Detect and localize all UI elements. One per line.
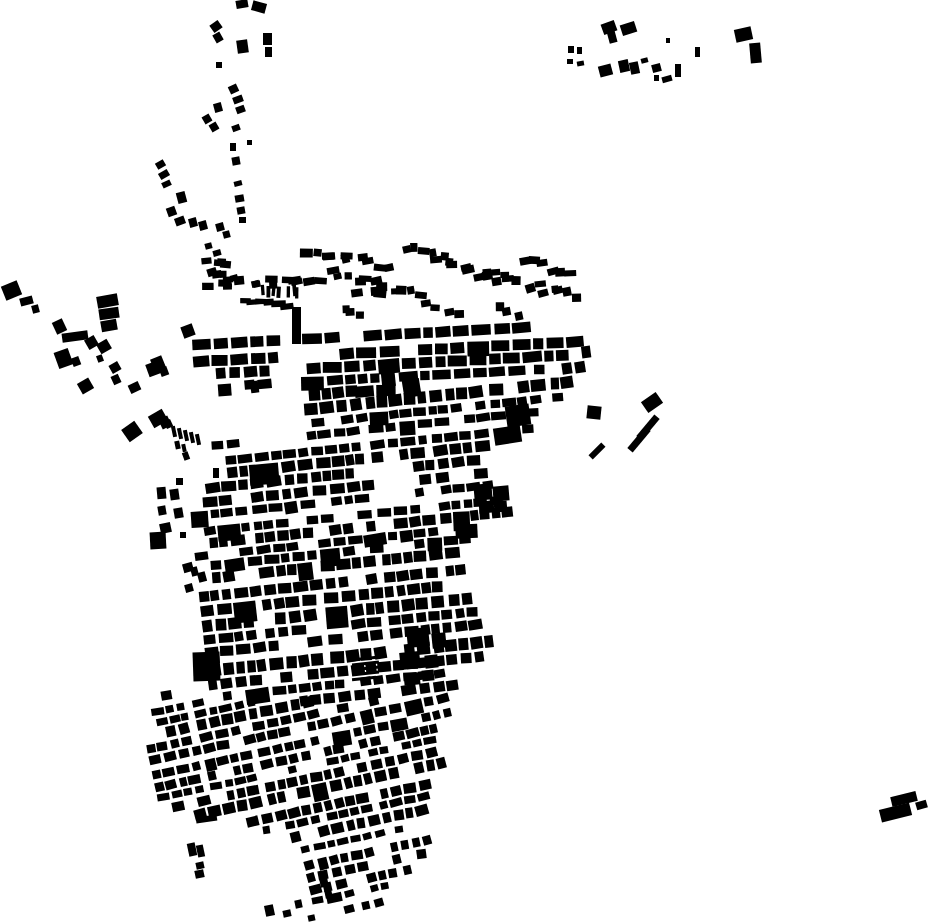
- building: [416, 642, 430, 655]
- building: [323, 362, 342, 373]
- building: [341, 590, 355, 602]
- building: [176, 703, 185, 711]
- building: [240, 750, 253, 761]
- building: [268, 352, 279, 364]
- building: [464, 414, 475, 423]
- building: [470, 354, 487, 365]
- building: [390, 717, 409, 732]
- building: [620, 21, 638, 36]
- building: [393, 660, 404, 671]
- building: [429, 723, 438, 733]
- building: [522, 424, 534, 433]
- building: [425, 747, 438, 759]
- building: [376, 385, 395, 396]
- building: [192, 698, 205, 707]
- building: [96, 293, 119, 308]
- building: [363, 724, 376, 735]
- building: [450, 403, 462, 413]
- building: [161, 179, 172, 188]
- building: [195, 785, 204, 794]
- building: [560, 376, 574, 390]
- building: [328, 634, 343, 645]
- building: [413, 762, 424, 775]
- building: [363, 360, 376, 372]
- building: [218, 495, 232, 506]
- building: [409, 568, 423, 580]
- building: [263, 33, 272, 45]
- building: [400, 840, 409, 850]
- building: [321, 388, 331, 400]
- building: [71, 356, 82, 367]
- building: [273, 597, 285, 609]
- building: [442, 622, 451, 633]
- building: [317, 857, 329, 871]
- building: [329, 854, 340, 865]
- building: [210, 560, 221, 570]
- building: [365, 662, 377, 674]
- building: [418, 435, 427, 444]
- building: [285, 474, 295, 485]
- building: [323, 746, 332, 757]
- building: [267, 793, 277, 806]
- building: [411, 750, 424, 761]
- building: [156, 741, 168, 751]
- building: [235, 0, 248, 9]
- building: [276, 519, 289, 528]
- building: [192, 339, 211, 350]
- building: [211, 355, 227, 366]
- building: [455, 608, 465, 619]
- building: [443, 708, 452, 718]
- building: [306, 363, 321, 375]
- building: [222, 570, 235, 583]
- building: [342, 546, 355, 557]
- building: [651, 63, 662, 73]
- building: [209, 122, 220, 133]
- building: [250, 491, 264, 503]
- building: [300, 845, 310, 853]
- building: [332, 469, 345, 480]
- building: [246, 815, 260, 827]
- building: [404, 698, 424, 716]
- building: [354, 689, 365, 700]
- building: [459, 534, 471, 544]
- building: [216, 62, 222, 68]
- building: [326, 757, 339, 766]
- building: [399, 530, 413, 543]
- building: [325, 681, 335, 690]
- building: [218, 703, 232, 713]
- building: [171, 800, 185, 812]
- building: [493, 425, 522, 446]
- building: [517, 380, 530, 393]
- building: [351, 618, 366, 630]
- building: [416, 612, 427, 622]
- building: [271, 450, 282, 460]
- building: [438, 501, 450, 511]
- building: [239, 217, 246, 223]
- building: [332, 744, 344, 755]
- building: [464, 499, 473, 508]
- building: [157, 792, 170, 801]
- building: [564, 270, 576, 276]
- building: [100, 319, 118, 333]
- building: [183, 788, 193, 796]
- building: [446, 654, 458, 665]
- building: [418, 670, 433, 680]
- building: [377, 661, 391, 673]
- building: [275, 809, 288, 821]
- building: [380, 788, 389, 799]
- building: [188, 217, 198, 228]
- building: [98, 307, 119, 321]
- building: [233, 180, 242, 187]
- building: [366, 603, 375, 615]
- building: [77, 378, 94, 395]
- building: [297, 459, 313, 471]
- building: [433, 668, 445, 678]
- building: [288, 753, 299, 764]
- building: [433, 640, 445, 653]
- building: [180, 532, 186, 538]
- building: [454, 310, 464, 318]
- building: [218, 384, 232, 397]
- building: [385, 423, 396, 432]
- building: [233, 765, 242, 775]
- building: [300, 499, 315, 509]
- building: [346, 819, 356, 831]
- building: [379, 800, 389, 810]
- building: [355, 792, 369, 804]
- building: [336, 558, 351, 570]
- building: [501, 506, 513, 517]
- building: [247, 698, 256, 707]
- building: [171, 789, 182, 798]
- building: [327, 375, 344, 386]
- building: [237, 454, 252, 464]
- building: [223, 283, 232, 289]
- building: [298, 448, 309, 458]
- building: [202, 742, 216, 754]
- building: [304, 403, 318, 416]
- building: [265, 781, 276, 792]
- building: [456, 387, 467, 399]
- building: [239, 546, 254, 556]
- building: [272, 744, 283, 755]
- building: [389, 797, 403, 808]
- building: [213, 468, 219, 478]
- building: [345, 468, 354, 479]
- building: [255, 532, 264, 543]
- building: [378, 358, 400, 374]
- building: [470, 636, 484, 650]
- building: [412, 460, 424, 472]
- building: [359, 275, 372, 282]
- building: [322, 882, 332, 893]
- building: [253, 641, 267, 653]
- building: [431, 596, 444, 609]
- building: [243, 615, 254, 628]
- building: [382, 554, 391, 565]
- building: [511, 276, 520, 285]
- building: [301, 751, 311, 761]
- building: [313, 802, 323, 813]
- building: [317, 870, 328, 881]
- building: [388, 615, 401, 625]
- building: [452, 484, 464, 493]
- building: [337, 665, 349, 676]
- building: [363, 772, 373, 785]
- building: [154, 781, 165, 792]
- building: [581, 346, 591, 359]
- building: [415, 291, 427, 299]
- building: [404, 393, 416, 405]
- building: [444, 536, 459, 546]
- building: [173, 507, 184, 518]
- building: [351, 850, 364, 861]
- building: [198, 220, 208, 231]
- building: [201, 257, 212, 264]
- building: [391, 553, 402, 565]
- building: [393, 517, 408, 529]
- building: [514, 311, 523, 321]
- building: [323, 800, 333, 812]
- building: [334, 797, 345, 809]
- building: [437, 405, 448, 414]
- building: [400, 436, 416, 446]
- building: [399, 408, 412, 418]
- building: [530, 379, 546, 392]
- building: [413, 407, 426, 416]
- building: [410, 447, 425, 459]
- building: [640, 57, 648, 64]
- building: [275, 612, 286, 624]
- building: [421, 712, 431, 722]
- building: [156, 717, 169, 726]
- building: [434, 417, 449, 426]
- building: [306, 516, 318, 525]
- building: [325, 606, 349, 629]
- building: [307, 636, 323, 648]
- building: [462, 442, 472, 454]
- building: [449, 443, 462, 455]
- building: [484, 635, 494, 648]
- building: [238, 479, 248, 490]
- building: [353, 775, 363, 787]
- building: [227, 439, 240, 448]
- building: [297, 473, 308, 483]
- building: [419, 656, 435, 668]
- building: [606, 29, 617, 44]
- building: [452, 325, 469, 337]
- building: [212, 32, 223, 44]
- building: [915, 800, 928, 811]
- building: [280, 671, 293, 682]
- building: [301, 804, 312, 815]
- building: [749, 43, 762, 64]
- building: [193, 355, 210, 367]
- building: [373, 898, 384, 908]
- building: [210, 781, 223, 790]
- building: [310, 736, 320, 746]
- building: [264, 555, 279, 565]
- building: [1, 280, 22, 300]
- building: [212, 249, 221, 257]
- building: [414, 539, 425, 549]
- building: [336, 400, 347, 413]
- building: [331, 455, 345, 467]
- building: [224, 557, 245, 573]
- building: [489, 366, 506, 377]
- building: [339, 443, 350, 453]
- building: [444, 432, 458, 442]
- building: [589, 443, 606, 460]
- building: [277, 791, 287, 803]
- building: [300, 249, 313, 258]
- building: [338, 809, 349, 819]
- building: [52, 318, 67, 334]
- building: [248, 708, 257, 720]
- building: [187, 842, 198, 856]
- building: [207, 771, 217, 782]
- building: [280, 715, 292, 725]
- building: [362, 480, 375, 491]
- building: [344, 889, 355, 898]
- building: [358, 589, 369, 601]
- building: [96, 354, 104, 363]
- building: [292, 307, 301, 344]
- building: [385, 756, 396, 767]
- building: [410, 243, 418, 252]
- building: [285, 820, 295, 829]
- building: [230, 534, 246, 546]
- building: [365, 397, 375, 410]
- building: [402, 358, 416, 369]
- building: [445, 547, 461, 559]
- building: [203, 634, 216, 645]
- building: [618, 59, 630, 73]
- building: [489, 353, 501, 364]
- building: [277, 779, 286, 790]
- building: [251, 353, 266, 364]
- building: [349, 806, 359, 816]
- building: [445, 388, 455, 401]
- building: [296, 817, 309, 827]
- building: [356, 413, 368, 423]
- building: [435, 472, 449, 484]
- building: [324, 592, 339, 603]
- building: [474, 468, 488, 479]
- building: [152, 770, 162, 780]
- building: [318, 538, 331, 548]
- building: [375, 602, 385, 615]
- building: [416, 849, 427, 859]
- building: [329, 779, 343, 792]
- building: [236, 799, 248, 811]
- building: [537, 288, 549, 297]
- building: [422, 835, 433, 846]
- building: [281, 553, 290, 563]
- building: [247, 140, 252, 145]
- building: [171, 426, 177, 438]
- building: [423, 696, 433, 706]
- building: [319, 401, 335, 415]
- building: [345, 272, 352, 279]
- building: [404, 643, 415, 656]
- building: [205, 482, 221, 494]
- building: [191, 511, 209, 528]
- building: [412, 739, 422, 748]
- building: [268, 640, 279, 651]
- building: [355, 453, 364, 464]
- building: [695, 47, 700, 57]
- building: [356, 817, 365, 828]
- building: [323, 693, 335, 704]
- building: [533, 338, 543, 349]
- building: [419, 682, 430, 694]
- building: [440, 485, 452, 495]
- building: [420, 371, 430, 381]
- building: [217, 603, 232, 615]
- building: [210, 590, 220, 601]
- building: [236, 39, 249, 53]
- building: [54, 348, 74, 369]
- building: [259, 705, 273, 717]
- building: [446, 679, 459, 691]
- building: [344, 495, 353, 504]
- building: [289, 528, 301, 540]
- building: [357, 861, 369, 872]
- building: [295, 287, 298, 298]
- building: [423, 736, 437, 745]
- building: [236, 661, 245, 674]
- building: [425, 460, 434, 470]
- building: [333, 766, 345, 778]
- building: [418, 247, 430, 255]
- building: [479, 509, 489, 520]
- building: [351, 288, 363, 297]
- building: [551, 377, 560, 389]
- building: [388, 438, 398, 447]
- building: [250, 477, 264, 489]
- building: [468, 618, 483, 630]
- building: [215, 728, 229, 739]
- building: [267, 729, 279, 739]
- building: [311, 896, 323, 905]
- building: [275, 701, 289, 714]
- building: [451, 501, 460, 510]
- building: [436, 655, 445, 666]
- building: [269, 657, 284, 670]
- building: [236, 643, 251, 654]
- building: [403, 865, 413, 876]
- building: [512, 322, 532, 334]
- building: [390, 785, 403, 797]
- building: [417, 391, 426, 404]
- building: [215, 368, 225, 380]
- building: [261, 285, 265, 296]
- building: [226, 790, 235, 801]
- building: [341, 414, 354, 424]
- building: [286, 656, 297, 668]
- building: [309, 883, 323, 895]
- building: [215, 618, 226, 630]
- building: [241, 522, 250, 531]
- building: [384, 328, 402, 340]
- building: [461, 653, 472, 664]
- building: [348, 535, 363, 544]
- building: [180, 713, 188, 721]
